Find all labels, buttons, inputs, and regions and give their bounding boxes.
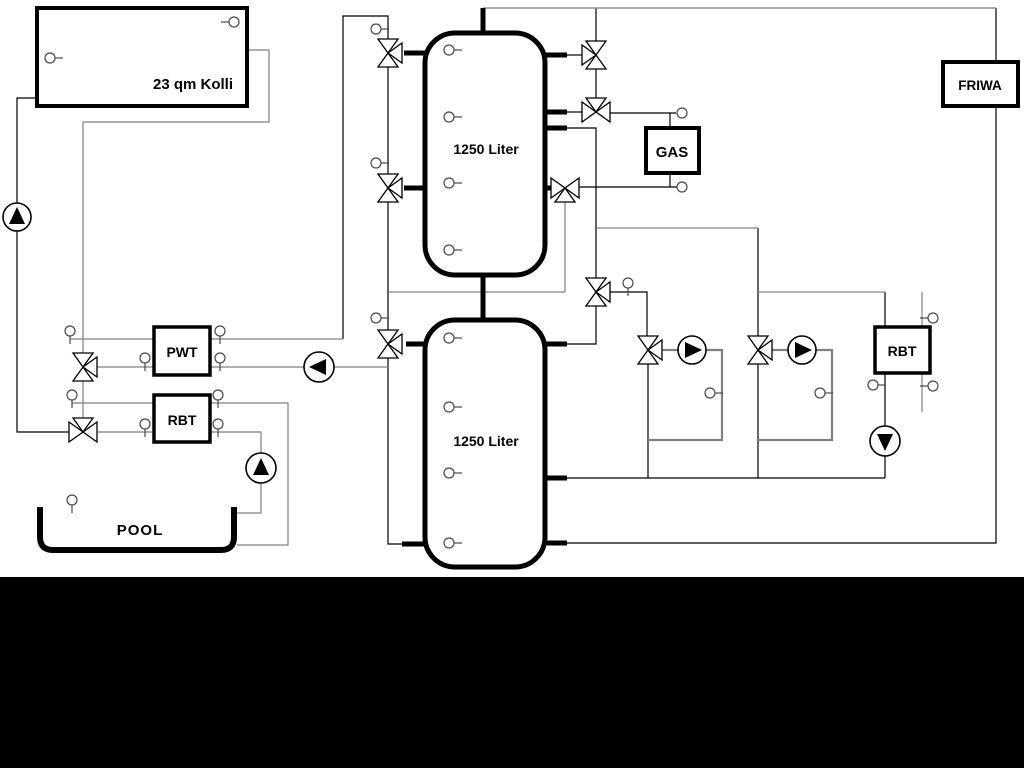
- solar-pump: [3, 203, 31, 231]
- hydraulic-diagram: 23 qm Kolli 1250 Liter 1250 Liter GAS FR…: [0, 0, 1024, 768]
- sensor-tank2-4-icon: [444, 538, 454, 548]
- sensor-rbt-right-return-icon: [868, 380, 878, 390]
- sensor-valve2-icon: [371, 158, 381, 168]
- sensor-pwt-out-right-icon: [215, 326, 225, 336]
- rbt-left-label: RBT: [168, 412, 197, 428]
- sensor-rbt-secondary-top-icon: [928, 313, 938, 323]
- sensor-collector-right-icon: [229, 17, 239, 27]
- pool-label: POOL: [117, 522, 164, 539]
- sensor-pwt-low-right-icon: [215, 353, 225, 363]
- gas-label: GAS: [656, 144, 689, 161]
- sensor-rbt-left-low-l-icon: [140, 419, 150, 429]
- pwt-pump: [304, 352, 334, 382]
- tank-bottom-label: 1250 Liter: [453, 433, 519, 449]
- sensor-valve1-icon: [371, 24, 381, 34]
- sensor-gas-return: [677, 182, 687, 192]
- sensor-gas-flow: [677, 108, 687, 118]
- rbt-right-label: RBT: [888, 343, 917, 359]
- sensor-valve3-icon: [371, 313, 381, 323]
- sensor-rbt-left-top-r-icon: [213, 390, 223, 400]
- sensor-tank1-2-icon: [444, 112, 454, 122]
- sensor-tank1-3-icon: [444, 178, 454, 188]
- sensor-tank2-2-icon: [444, 402, 454, 412]
- heating-circuit-1-pump: [678, 336, 706, 364]
- sensor-collector-left-icon: [45, 53, 55, 63]
- sensor-tank2-3-icon: [444, 468, 454, 478]
- sensor-tank2-1-icon: [444, 333, 454, 343]
- heating-circuit-2-pump: [788, 336, 816, 364]
- sensor-circuit2-icon: [815, 388, 825, 398]
- rbt-right-pump: [870, 426, 900, 456]
- friwa-label: FRIWA: [958, 78, 1002, 93]
- letterbox-bottom: [0, 577, 1024, 768]
- sensor-tank1-4-icon: [444, 245, 454, 255]
- sensor-gas-return-icon: [677, 182, 687, 192]
- pwt-label: PWT: [166, 344, 198, 360]
- sensor-pool-icon: [67, 495, 77, 505]
- sensor-rbt-left-top-l-icon: [67, 390, 77, 400]
- sensor-pwt-low-left-icon: [140, 353, 150, 363]
- schematic-page: 23 qm Kolli 1250 Liter 1250 Liter GAS FR…: [0, 0, 1024, 768]
- tank-top-label: 1250 Liter: [453, 141, 519, 157]
- collector-label: 23 qm Kolli: [153, 76, 233, 93]
- sensor-heating-supply-icon: [623, 278, 633, 288]
- pool-pump: [246, 453, 276, 483]
- sensor-circuit1-icon: [705, 388, 715, 398]
- sensor-rbt-secondary-bottom-icon: [928, 381, 938, 391]
- sensor-gas-flow-icon: [677, 108, 687, 118]
- sensor-pwt-in-left-icon: [65, 326, 75, 336]
- sensor-tank1-1-icon: [444, 45, 454, 55]
- sensor-rbt-left-low-r-icon: [213, 419, 223, 429]
